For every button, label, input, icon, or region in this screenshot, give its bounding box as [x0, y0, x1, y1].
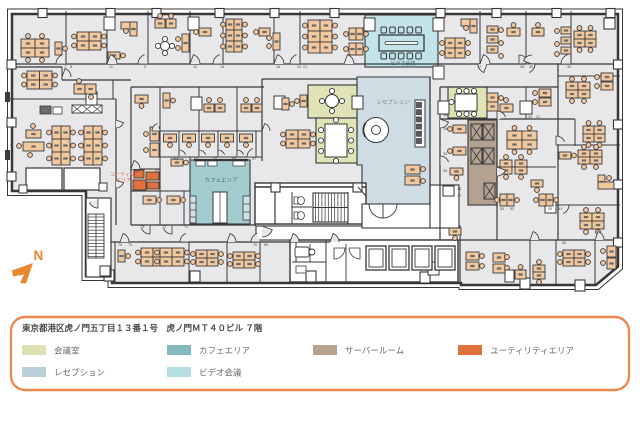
svg-text:12: 12 [193, 65, 197, 69]
svg-text:73: 73 [128, 243, 132, 247]
svg-text:東京都港区虎ノ門五丁目１３番１号 虎ノ門ＭＴ４０ビル ７階: 東京都港区虎ノ門五丁目１３番１号 虎ノ門ＭＴ４０ビル ７階 [22, 323, 263, 333]
svg-text:29: 29 [528, 115, 532, 119]
svg-text:レセプション: レセプション [54, 368, 105, 378]
svg-text:53: 53 [500, 207, 504, 211]
svg-text:ビデオ会議: ビデオ会議 [390, 60, 415, 67]
svg-text:カフェエリア: カフェエリア [204, 177, 238, 184]
svg-text:52: 52 [510, 207, 514, 211]
svg-text:38: 38 [443, 113, 447, 117]
svg-text:ユーティリティエリア: ユーティリティエリア [490, 346, 574, 356]
svg-text:39: 39 [443, 127, 447, 131]
svg-text:28: 28 [520, 65, 524, 69]
svg-text:20: 20 [297, 65, 301, 69]
svg-text:59: 59 [213, 157, 217, 161]
svg-text:11: 11 [109, 65, 113, 69]
svg-text:32: 32 [567, 65, 571, 69]
svg-text:35: 35 [443, 169, 447, 173]
svg-text:76: 76 [118, 243, 122, 247]
svg-text:60: 60 [194, 157, 198, 161]
svg-text:61: 61 [174, 157, 178, 161]
svg-text:57: 57 [252, 157, 256, 161]
svg-text:55: 55 [548, 207, 552, 211]
svg-text:62: 62 [155, 169, 159, 173]
svg-text:63: 63 [135, 169, 139, 173]
svg-text:サーバールーム: サーバールーム [345, 346, 404, 356]
svg-text:ビデオ会議: ビデオ会議 [199, 368, 242, 378]
svg-text:71: 71 [184, 225, 188, 229]
svg-text:カフェエリア: カフェエリア [199, 346, 250, 356]
svg-text:会議室: 会議室 [54, 346, 80, 356]
svg-text:N: N [34, 248, 44, 263]
svg-text:75: 75 [140, 225, 144, 229]
svg-text:17: 17 [477, 65, 481, 69]
svg-text:37: 37 [457, 194, 461, 198]
svg-text:21: 21 [303, 65, 307, 69]
svg-text:69: 69 [264, 243, 268, 247]
svg-text:58: 58 [232, 157, 236, 161]
svg-text:51: 51 [558, 207, 562, 211]
svg-text:30: 30 [529, 65, 533, 69]
svg-text:33: 33 [443, 152, 447, 156]
svg-text:7: 7 [64, 65, 66, 69]
svg-text:レセプション: レセプション [376, 99, 410, 106]
svg-text:21: 21 [536, 115, 540, 119]
svg-text:14: 14 [220, 65, 224, 69]
svg-text:16: 16 [276, 65, 280, 69]
svg-text:70: 70 [253, 243, 257, 247]
svg-text:36: 36 [457, 187, 461, 191]
svg-text:8: 8 [70, 65, 72, 69]
svg-text:72: 72 [162, 225, 166, 229]
svg-text:エリア: エリア [116, 178, 131, 184]
svg-text:9: 9 [144, 65, 146, 69]
svg-text:50: 50 [562, 241, 566, 245]
